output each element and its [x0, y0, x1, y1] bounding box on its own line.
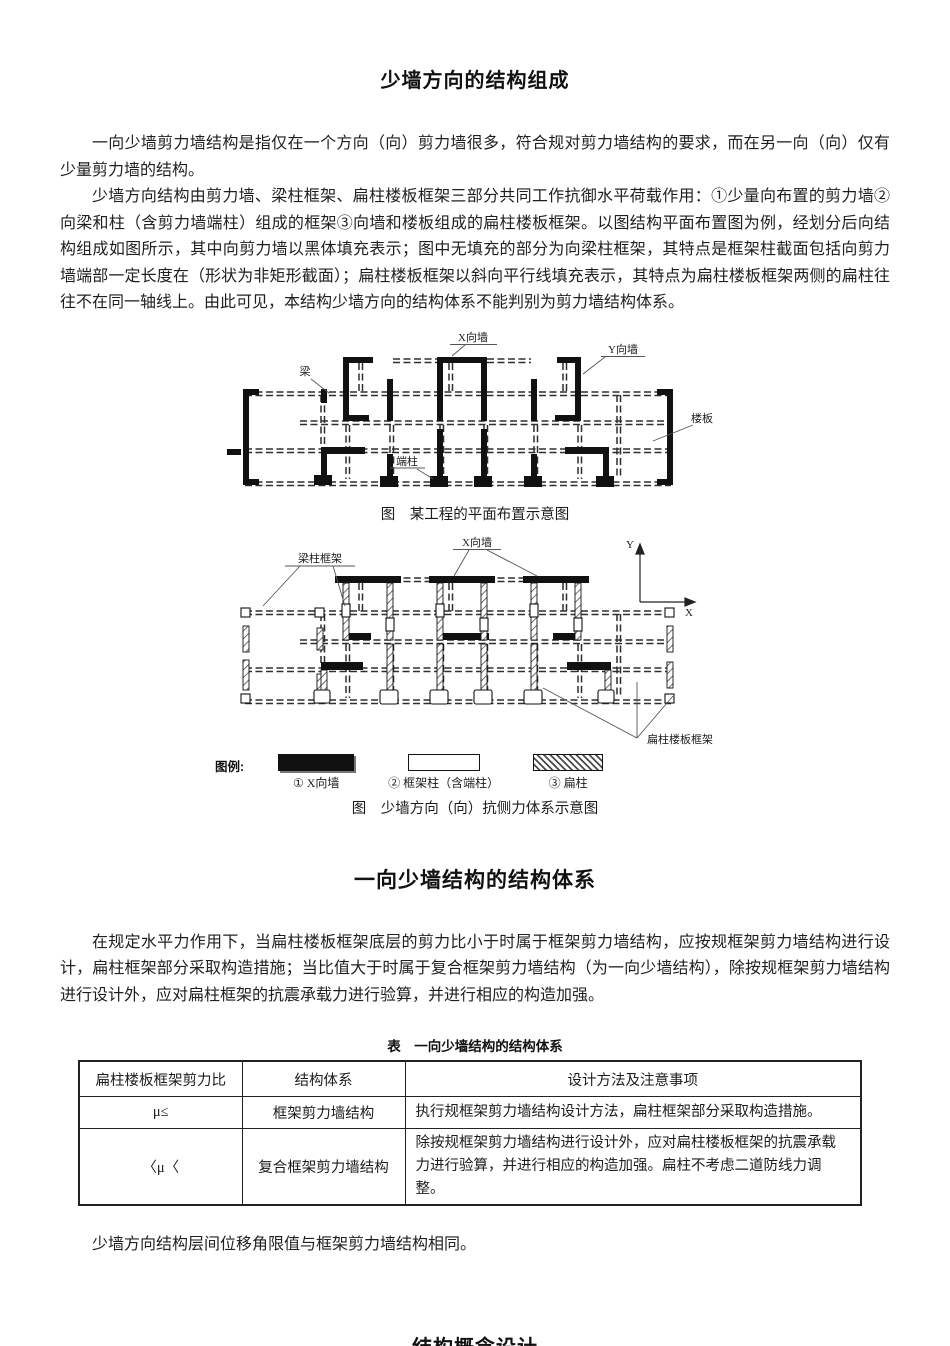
- table-caption: 表 一向少墙结构的结构体系: [60, 1035, 890, 1055]
- end-column-label: 端柱: [396, 454, 418, 468]
- figure2-legend: 图例: ① X向墙 ② 框架柱（含端柱） ③ 扁柱: [215, 754, 735, 791]
- legend-label: ③ 扁柱: [549, 774, 588, 791]
- header-method: 设计方法及注意事项: [405, 1061, 861, 1097]
- cell-method: 执行规框架剪力墙结构设计方法，扁柱框架部分采取构造措施。: [405, 1097, 861, 1129]
- leader-lines: [311, 344, 693, 479]
- cell-system: 框架剪力墙结构: [242, 1097, 405, 1129]
- figure1-caption: 图 某工程的平面布置示意图: [60, 503, 890, 524]
- shear-walls-black: [227, 357, 673, 487]
- paragraph-intro: 一向少墙剪力墙结构是指仅在一个方向（向）剪力墙很多，符合规对剪力墙结构的要求，而…: [60, 131, 890, 184]
- cell-system: 复合框架剪力墙结构: [242, 1129, 405, 1206]
- legend-swatch-black-wall: [278, 754, 354, 771]
- structure-system-table: 扁柱楼板框架剪力比 结构体系 设计方法及注意事项 μ≤ 框架剪力墙结构 执行规框…: [78, 1060, 862, 1206]
- beam-column-frame-label: 梁柱框架: [298, 551, 342, 565]
- plan-diagram-1: 梁 X向墙 Y向墙 楼板 端柱: [225, 329, 725, 501]
- page-title: 少墙方向的结构组成: [60, 64, 890, 93]
- section2-title: 一向少墙结构的结构体系: [60, 864, 890, 894]
- document-page: 少墙方向的结构组成 一向少墙剪力墙结构是指仅在一个方向（向）剪力墙很多，符合规对…: [0, 0, 950, 1346]
- axis-x-label: X: [685, 607, 693, 619]
- legend-swatch-hatched-column: [533, 754, 603, 771]
- legend-item-flat-column: ③ 扁柱: [533, 754, 603, 791]
- figure2-caption: 图 少墙方向（向）抗侧力体系示意图: [60, 797, 890, 818]
- legend-item-frame-column: ② 框架柱（含端柱）: [388, 754, 499, 791]
- plan-diagram-2: Y X: [225, 532, 725, 750]
- legend-title: 图例:: [215, 754, 244, 775]
- figure-lateral-system: Y X: [60, 532, 890, 818]
- flat-column-frame-label: 扁柱楼板框架: [647, 732, 713, 746]
- table-row: μ≤ 框架剪力墙结构 执行规框架剪力墙结构设计方法，扁柱框架部分采取构造措施。: [79, 1097, 861, 1129]
- paragraph-composition: 少墙方向结构由剪力墙、梁柱框架、扁柱楼板框架三部分共同工作抗御水平荷载作用：①少…: [60, 184, 890, 317]
- axis-y-label: Y: [626, 539, 634, 551]
- legend-label: ② 框架柱（含端柱）: [388, 774, 499, 791]
- x-wall-label-2: X向墙: [462, 535, 492, 549]
- cell-ratio: 〈μ〈: [79, 1129, 242, 1206]
- section3-title: 结构概念设计: [60, 1331, 890, 1346]
- x-wall-label: X向墙: [458, 330, 488, 344]
- header-shear-ratio: 扁柱楼板框架剪力比: [79, 1061, 242, 1097]
- legend-label: ① X向墙: [293, 774, 339, 791]
- table-row: 〈μ〈 复合框架剪力墙结构 除按规框架剪力墙结构进行设计外，应对扁柱楼板框架的抗…: [79, 1129, 861, 1206]
- axis-arrows: [636, 544, 695, 606]
- paragraph-drift-limit: 少墙方向结构层间位移角限值与框架剪力墙结构相同。: [60, 1232, 890, 1259]
- cell-method: 除按规框架剪力墙结构进行设计外，应对扁柱楼板框架的抗震承载力进行验算，并进行相应…: [405, 1129, 861, 1206]
- paragraph-system: 在规定水平力作用下，当扁柱楼板框架底层的剪力比小于时属于框架剪力墙结构，应按规框…: [60, 930, 890, 1010]
- cell-ratio: μ≤: [79, 1097, 242, 1129]
- y-wall-label: Y向墙: [608, 342, 638, 356]
- legend-swatch-white-column: [408, 754, 480, 771]
- beam-label: 梁: [300, 364, 311, 378]
- figure-plan-layout: 梁 X向墙 Y向墙 楼板 端柱 图 某工程的平面布置示意图: [60, 329, 890, 524]
- slab-label: 楼板: [691, 411, 713, 425]
- legend-item-x-wall: ① X向墙: [278, 754, 354, 791]
- header-system: 结构体系: [242, 1061, 405, 1097]
- x-walls-black: [321, 576, 611, 670]
- table-header-row: 扁柱楼板框架剪力比 结构体系 设计方法及注意事项: [79, 1061, 861, 1097]
